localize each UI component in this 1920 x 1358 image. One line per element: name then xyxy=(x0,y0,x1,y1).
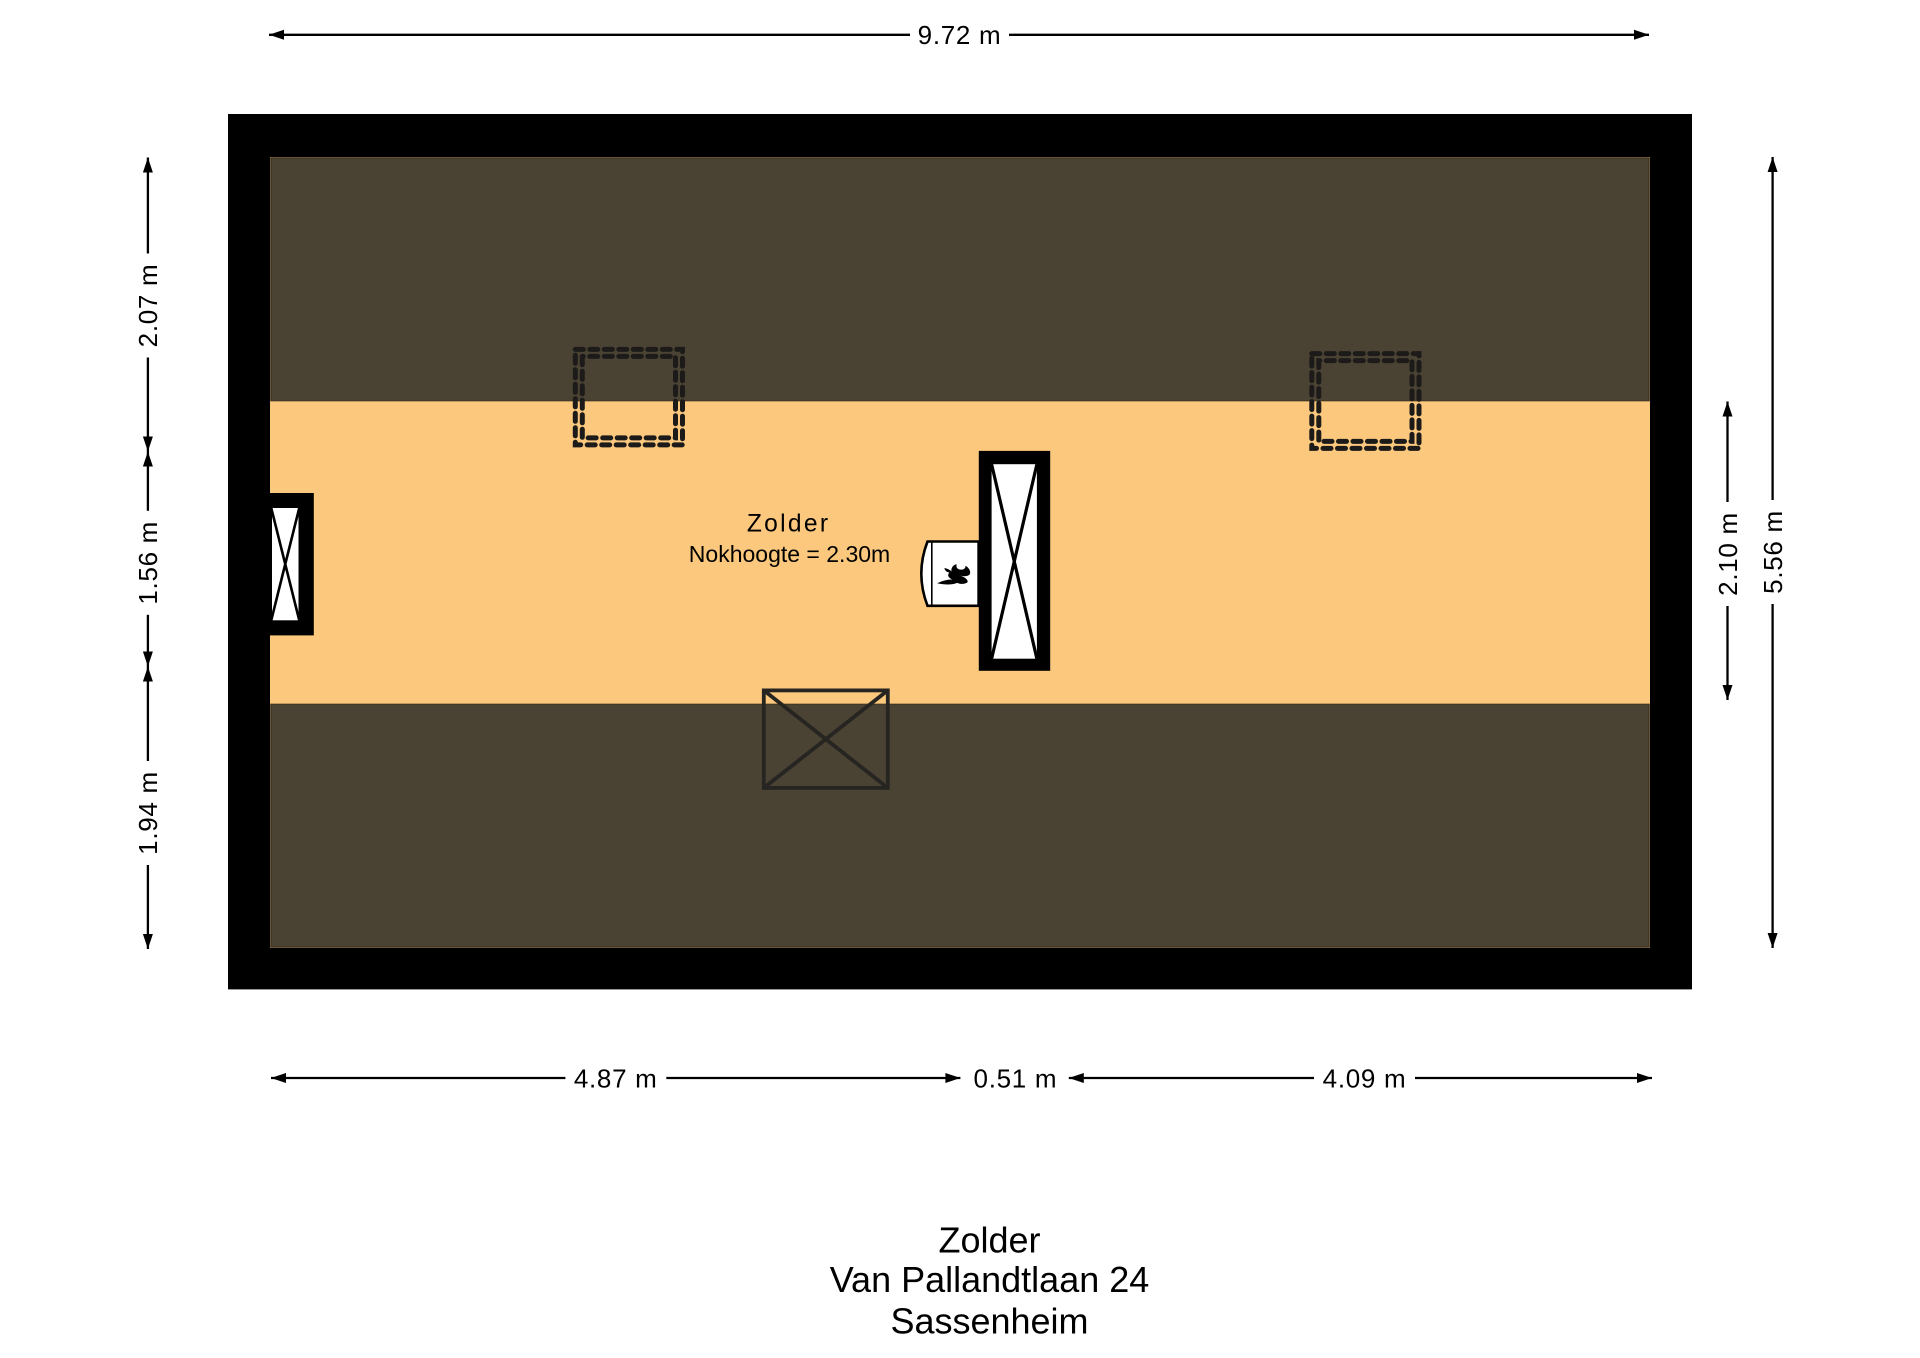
svg-text:4.09 m: 4.09 m xyxy=(1323,1063,1407,1093)
svg-text:9.72 m: 9.72 m xyxy=(918,20,1002,50)
svg-text:4.87 m: 4.87 m xyxy=(574,1063,658,1093)
svg-text:Zolder: Zolder xyxy=(747,510,831,537)
svg-text:Van Pallandtlaan 24: Van Pallandtlaan 24 xyxy=(830,1259,1150,1300)
svg-text:0.51 m: 0.51 m xyxy=(974,1063,1058,1093)
svg-text:1.56 m: 1.56 m xyxy=(133,521,163,605)
svg-text:1.94 m: 1.94 m xyxy=(133,771,163,855)
svg-text:5.56 m: 5.56 m xyxy=(1758,510,1788,594)
svg-text:Zolder: Zolder xyxy=(938,1219,1040,1260)
svg-text:Nokhoogte = 2.30m: Nokhoogte = 2.30m xyxy=(689,541,890,567)
svg-text:2.07 m: 2.07 m xyxy=(133,264,163,348)
svg-text:Sassenheim: Sassenheim xyxy=(890,1301,1088,1342)
svg-text:2.10 m: 2.10 m xyxy=(1713,512,1743,596)
